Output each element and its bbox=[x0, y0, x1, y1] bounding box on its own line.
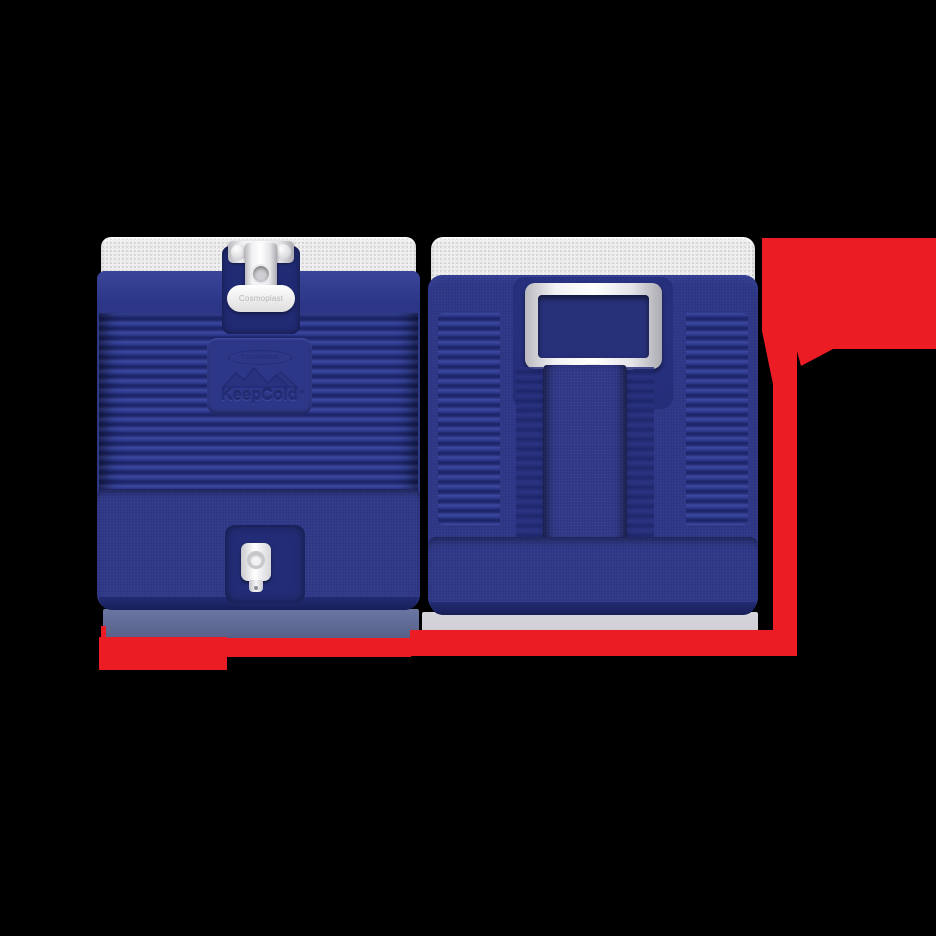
brand-oval: Cosmoplast bbox=[228, 350, 292, 365]
mountains-icon bbox=[221, 366, 299, 388]
latch-label: Cosmoplast bbox=[239, 294, 283, 303]
carry-handle-opening bbox=[538, 295, 649, 358]
latch-hole bbox=[251, 264, 271, 284]
dimension-line-bottom-left bbox=[99, 637, 227, 670]
back-cooler-ribbed-texture-left bbox=[438, 313, 500, 525]
carry-handle bbox=[525, 283, 662, 369]
registered-mark: ® bbox=[300, 387, 305, 401]
brand-logo-panel: Cosmoplast KeepCold® bbox=[207, 338, 312, 414]
strap-edge-ribs-left bbox=[516, 367, 543, 543]
back-cooler bbox=[428, 237, 758, 615]
keepcold-text: KeepCold bbox=[221, 387, 298, 404]
dimension-line-bottom-mid bbox=[226, 638, 411, 657]
latch-pull: Cosmoplast bbox=[227, 285, 295, 312]
back-cooler-ribbed-texture-right bbox=[686, 313, 748, 525]
strap-edge-ribs-right bbox=[627, 367, 654, 543]
back-cooler-bottom-lip bbox=[430, 602, 756, 615]
brand-label: Cosmoplast bbox=[241, 354, 278, 361]
center-strap-channel bbox=[543, 365, 627, 545]
keepcold-wordmark: KeepCold® bbox=[221, 389, 298, 403]
ground-shadow-front-cooler bbox=[103, 609, 419, 639]
spigot-outlet-hole bbox=[254, 586, 258, 590]
product-image-canvas: Cosmoplast Cosmoplast KeepCold® bbox=[0, 0, 936, 936]
ground-shadow-back-cooler bbox=[422, 612, 758, 644]
latch-screw-cap bbox=[275, 244, 291, 260]
dimension-arrow-vertical bbox=[762, 238, 936, 656]
spigot-button bbox=[247, 551, 265, 569]
front-cooler: Cosmoplast Cosmoplast KeepCold® bbox=[97, 237, 420, 610]
